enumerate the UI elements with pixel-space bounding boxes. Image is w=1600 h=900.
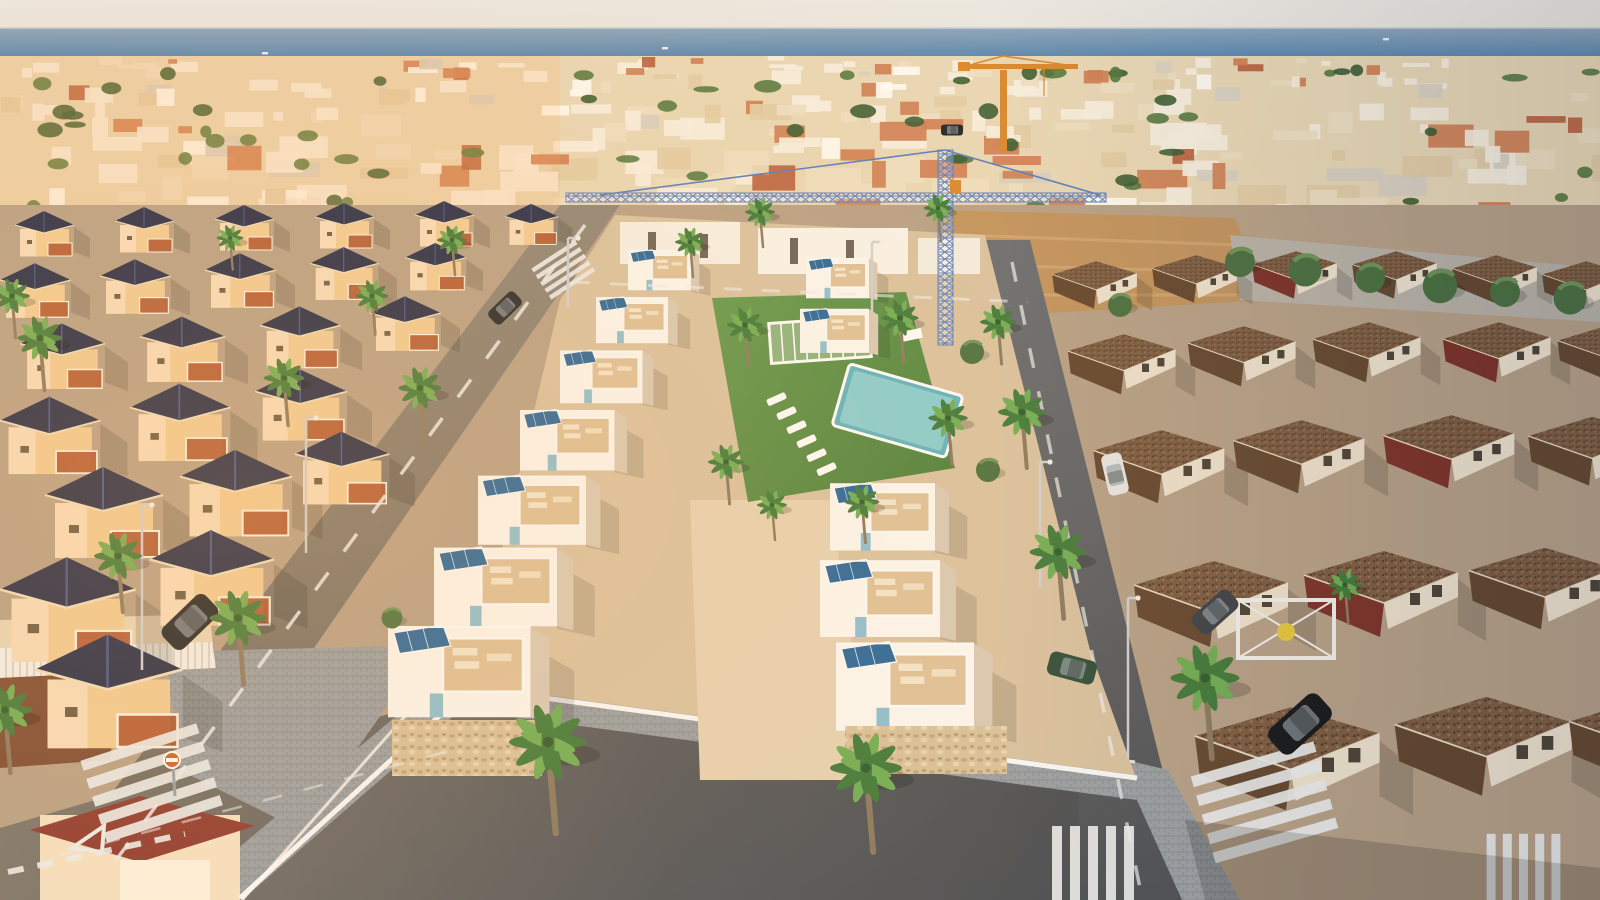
aerial-development-photo xyxy=(0,0,1600,900)
cool-shade-overlay xyxy=(0,0,1600,900)
scene-svg xyxy=(0,0,1600,900)
